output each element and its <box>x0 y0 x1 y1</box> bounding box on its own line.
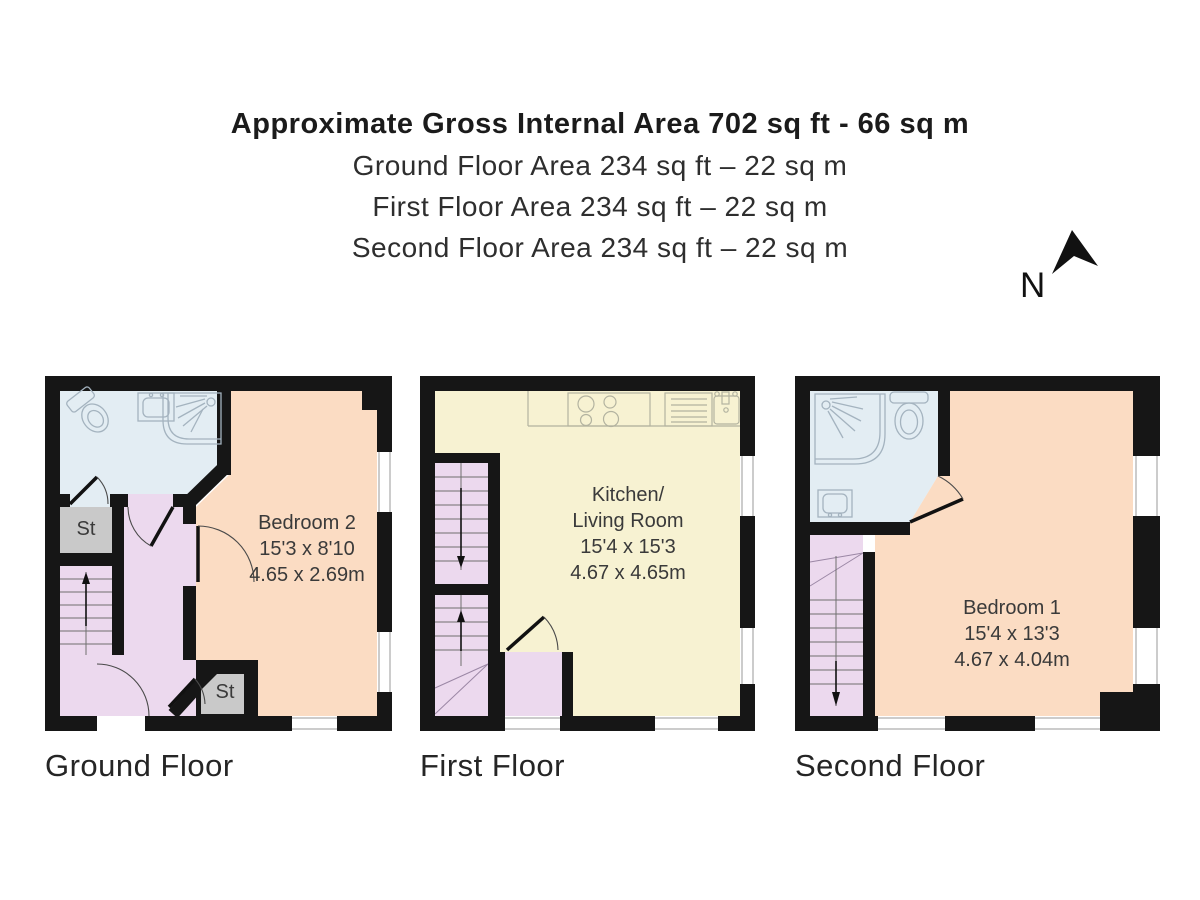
room-name: Bedroom 1 <box>912 595 1112 621</box>
storage1-label: St <box>64 518 108 541</box>
second-floor-plan <box>795 376 1160 731</box>
room-name-line2: Living Room <box>528 508 728 534</box>
ground-floor-caption: Ground Floor <box>45 748 234 784</box>
room-size-m: 4.65 x 2.69m <box>207 562 407 588</box>
room-name-line1: Kitchen/ <box>528 482 728 508</box>
compass: N <box>1014 222 1124 317</box>
page-title: Approximate Gross Internal Area 702 sq f… <box>0 108 1200 141</box>
ground-floor-corner-notch <box>362 376 392 410</box>
compass-north-label: N <box>1020 266 1045 306</box>
ground-floor-area-line: Ground Floor Area 234 sq ft – 22 sq m <box>0 150 1200 182</box>
second-floor-corner-notch <box>1100 692 1160 731</box>
bedroom2-label: Bedroom 2 15'3 x 8'10 4.65 x 2.69m <box>207 510 407 588</box>
second-floor-drawing <box>795 376 1160 731</box>
room-size-ft: 15'3 x 8'10 <box>207 536 407 562</box>
room-size-m: 4.67 x 4.04m <box>912 647 1112 673</box>
second-floor-caption: Second Floor <box>795 748 985 784</box>
room-name: Bedroom 2 <box>207 510 407 536</box>
room-size-m: 4.67 x 4.65m <box>528 560 728 586</box>
room-size-ft: 15'4 x 15'3 <box>528 534 728 560</box>
room-size-ft: 15'4 x 13'3 <box>912 621 1112 647</box>
bedroom1-label: Bedroom 1 15'4 x 13'3 4.67 x 4.04m <box>912 595 1112 673</box>
first-floor-area-line: First Floor Area 234 sq ft – 22 sq m <box>0 191 1200 223</box>
storage2-label: St <box>203 681 247 704</box>
kitchen-living-label: Kitchen/ Living Room 15'4 x 15'3 4.67 x … <box>528 482 728 586</box>
floorplan-page: Approximate Gross Internal Area 702 sq f… <box>0 0 1200 900</box>
north-arrow-icon <box>1040 226 1110 284</box>
first-floor-caption: First Floor <box>420 748 565 784</box>
